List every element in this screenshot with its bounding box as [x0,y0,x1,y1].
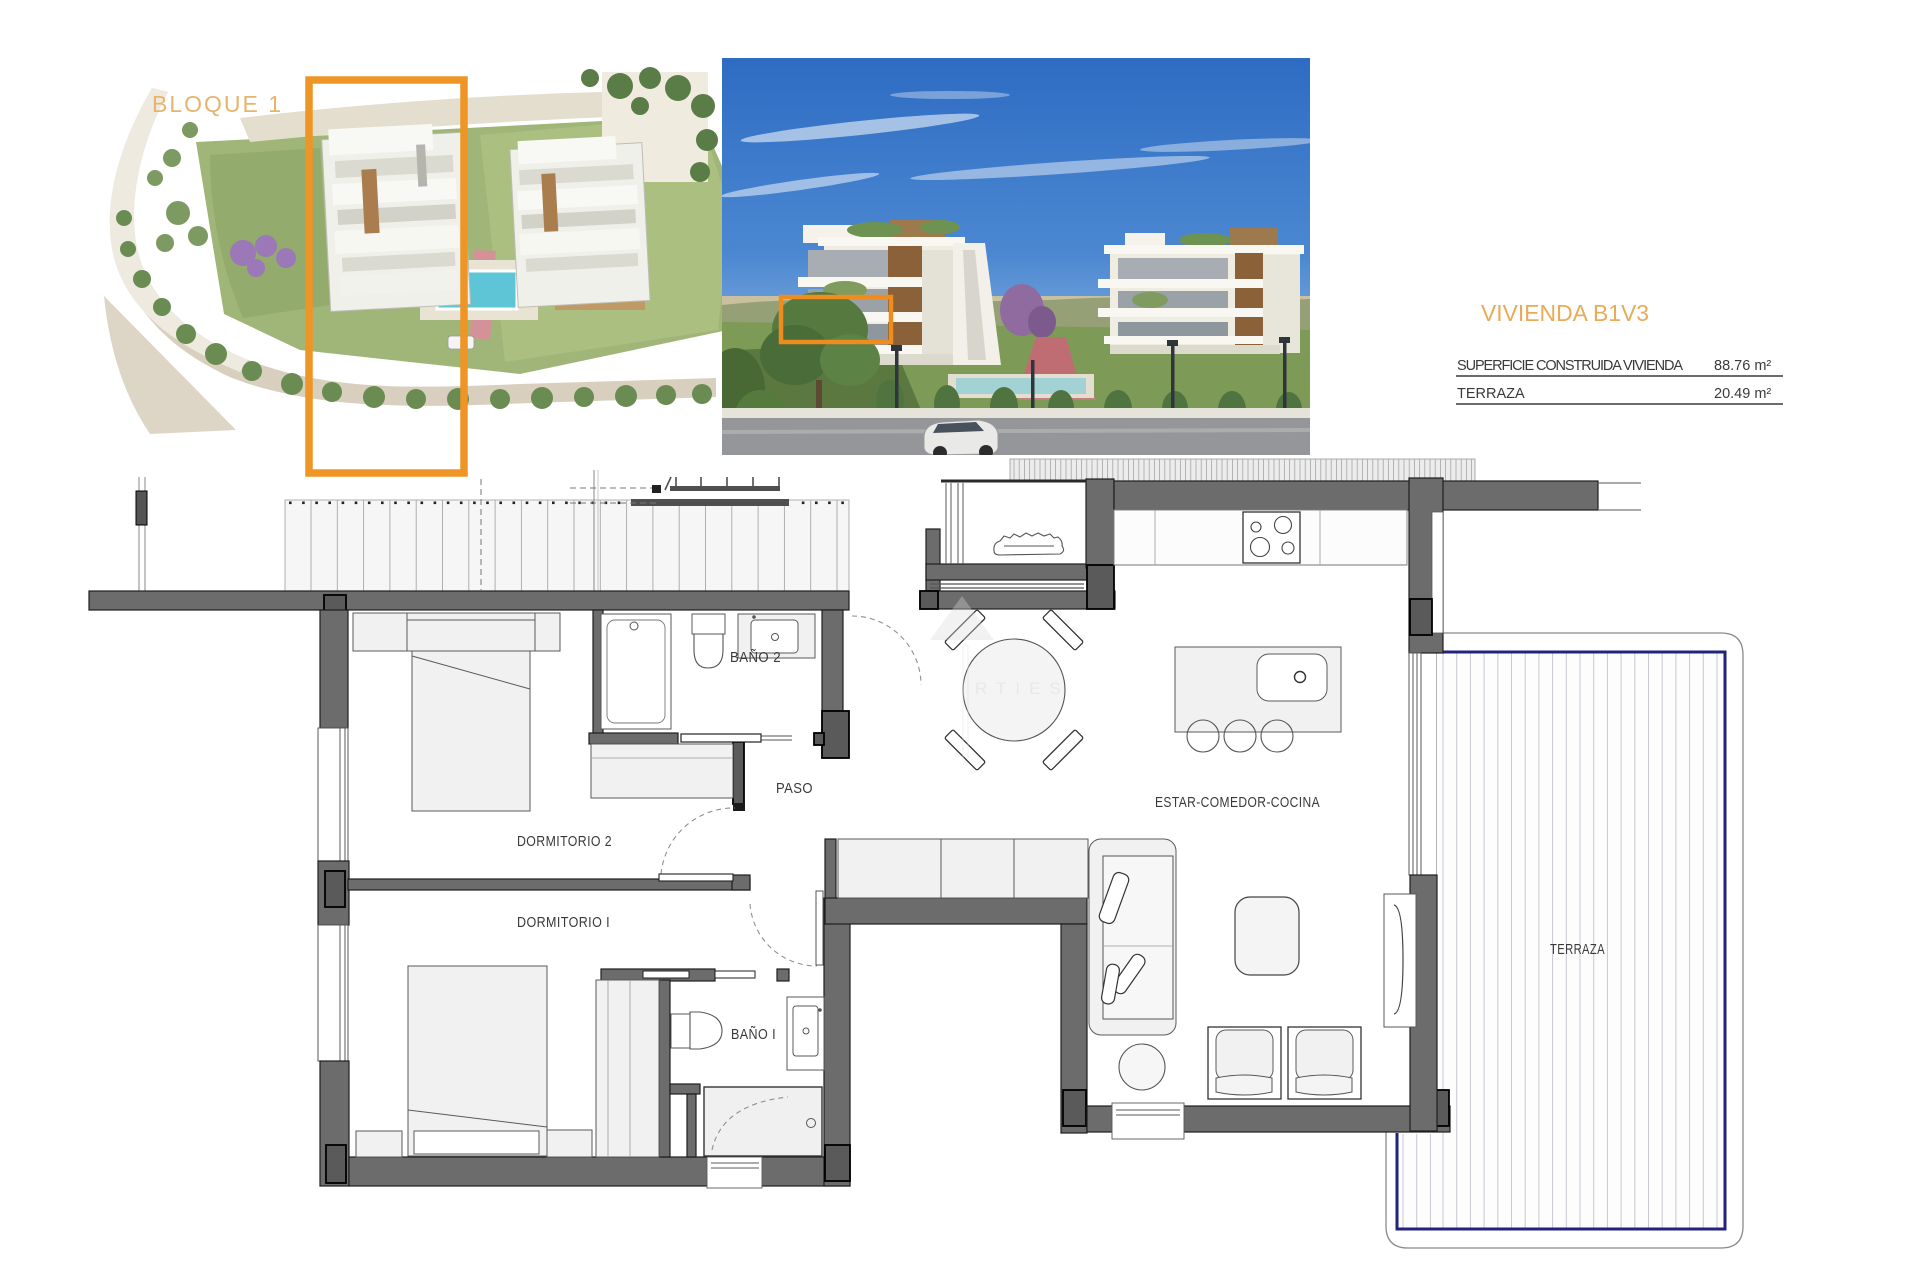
svg-text:BAÑO I: BAÑO I [731,1026,776,1043]
svg-text:DORMITORIO I: DORMITORIO I [517,914,610,931]
svg-text:RTIES: RTIES [975,679,1070,698]
svg-text:BAÑO 2: BAÑO 2 [730,649,781,666]
svg-text:VIVIENDA B1V3: VIVIENDA B1V3 [1481,300,1649,326]
svg-text:88.76 m²: 88.76 m² [1714,358,1771,374]
svg-text:20.49 m²: 20.49 m² [1714,386,1771,402]
svg-text:BLOQUE 1: BLOQUE 1 [152,91,283,117]
svg-text:TERRAZA: TERRAZA [1550,941,1605,958]
svg-text:ESTAR-COMEDOR-COCINA: ESTAR-COMEDOR-COCINA [1155,794,1320,811]
svg-text:SUPERFICIE CONSTRUIDA VIVIENDA: SUPERFICIE CONSTRUIDA VIVIENDA [1457,358,1683,374]
svg-text:PASO: PASO [776,780,813,797]
svg-text:TERRAZA: TERRAZA [1457,386,1525,402]
svg-text:DORMITORIO 2: DORMITORIO 2 [517,833,612,850]
